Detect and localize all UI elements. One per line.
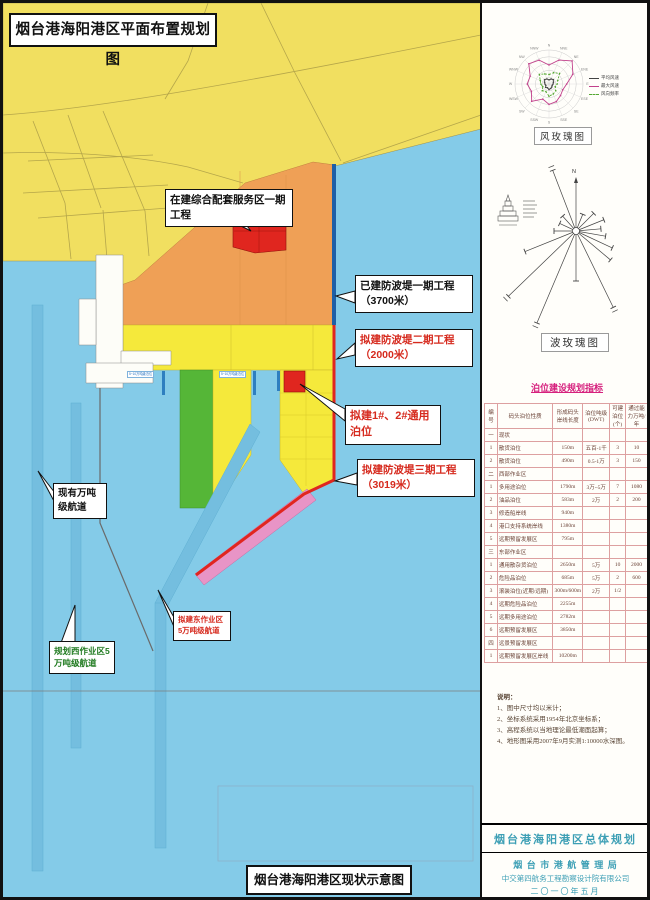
note-item: 3、高程系统以当地理论最低潮面起算； <box>497 725 647 736</box>
table-row: 一现状 <box>485 429 648 442</box>
wind-rose-point <box>545 91 547 93</box>
table-cell: 2万 <box>583 585 610 598</box>
table-cell <box>626 520 648 533</box>
table-row: 1通用散杂货泊位2650m5万102000 <box>485 559 648 572</box>
ray-end-bar2 <box>533 326 539 328</box>
table-cell: 散货泊位 <box>497 442 552 455</box>
callout-breakwater1: 已建防波堤一期工程（3700米） <box>355 275 473 313</box>
table-row: 4远期危险品泊位2255m <box>485 598 648 611</box>
table-cell <box>583 624 610 637</box>
bottom-caption-box: 烟台港海阳港区现状示意图 <box>246 865 412 895</box>
wind-rose-direction-label: SW <box>519 109 525 113</box>
table-cell: 散货泊位 <box>497 455 552 468</box>
wave-rose-center <box>573 228 580 235</box>
table-cell <box>583 598 610 611</box>
table-cell <box>626 429 648 442</box>
ray-end-bar <box>609 258 613 263</box>
table-cell: 5万 <box>583 559 610 572</box>
wind-rose-point <box>550 78 552 80</box>
wind-rose-legend: 平均风速最大风速风向频率 <box>589 74 619 98</box>
wind-rose-direction-label: SSW <box>530 118 539 122</box>
table-cell <box>626 624 648 637</box>
note-item: 4、地形图采用2007年9月实测1:10000水深图。 <box>497 736 647 747</box>
table-cell: 5 <box>485 533 498 546</box>
table-cell: 1080 <box>626 481 648 494</box>
wind-rose-point <box>542 86 544 88</box>
wind-rose-point <box>539 74 541 76</box>
table-cell: 5万 <box>583 572 610 585</box>
wind-rose-point <box>544 79 546 81</box>
table-cell: 多用途泊位 <box>497 481 552 494</box>
table-cell: 2 <box>485 494 498 507</box>
table-cell: 10200m <box>553 650 583 663</box>
table-cell: 远景预留发展区 <box>497 637 552 650</box>
wind-rose-point <box>544 83 546 85</box>
wind-rose-point <box>562 89 564 91</box>
callout-under-construction: 在建综合配套服务区一期工程 <box>165 189 293 227</box>
table-row: 3滚装泊位(近期/远期)300m/600m2万1/2 <box>485 585 648 598</box>
table-cell <box>626 585 648 598</box>
table-cell: 通用散杂货泊位 <box>497 559 552 572</box>
table-cell <box>583 637 610 650</box>
table-row: 2危险品泊位685m5万2600 <box>485 572 648 585</box>
table-row: 6远期预留发展区3850m <box>485 624 648 637</box>
ray-end-bar <box>611 245 614 250</box>
table-header-row: 编号码头泊位性质形成码头岸线长度泊位吨级(DWT)可建泊位(个)通过能力万吨/年 <box>485 404 648 429</box>
table-cell: 油品泊位 <box>497 494 552 507</box>
table-cell <box>553 546 583 559</box>
table-cell: 西部作业区 <box>497 468 552 481</box>
plan-title-block: 烟台港海阳港区总体规划 <box>481 823 650 853</box>
wind-rose-direction-label: NNE <box>560 47 568 51</box>
wind-rose-point <box>548 95 550 97</box>
wind-rose-direction-label: SSE <box>560 118 568 122</box>
date: 二〇一〇年五月 <box>481 886 650 897</box>
table-cell: 远期多用途泊位 <box>497 611 552 624</box>
wind-rose-chart: NNNENEENEEESESESSESSSWSWWSWWWNWNWNNW <box>509 44 589 125</box>
notes-label: 说明： <box>497 692 647 703</box>
table-row: 三东部作业区 <box>485 546 648 559</box>
wave-rose-ray <box>508 231 576 296</box>
wind-rose-point <box>548 74 550 76</box>
wind-rose-point <box>557 80 559 82</box>
ray-end-bar2 <box>503 297 507 301</box>
wind-rose-point <box>541 90 543 92</box>
table-cell: 滚装泊位(近期/远期) <box>497 585 552 598</box>
wind-rose-direction-label: NE <box>574 55 580 59</box>
table-cell <box>583 533 610 546</box>
table-cell: 200 <box>626 494 648 507</box>
wind-rose-direction-label: ESE <box>581 97 589 101</box>
table-cell <box>610 611 626 624</box>
table-cell <box>553 429 583 442</box>
table-cell: 远期预留发展区 <box>497 624 552 637</box>
table-cell <box>626 468 648 481</box>
table-cell: 3 <box>485 507 498 520</box>
table-cell: 490m <box>553 455 583 468</box>
table-cell <box>583 546 610 559</box>
table-cell <box>626 650 648 663</box>
table-cell <box>583 520 610 533</box>
planned-berths-1-2 <box>284 371 305 392</box>
wind-rose-point <box>545 87 547 89</box>
wind-rose-point <box>572 73 574 75</box>
berth-mark-left: 5~10万吨级泊位 <box>127 371 154 378</box>
table-cell: 940m <box>553 507 583 520</box>
callout-west-channel: 规划西作业区5万吨级航道 <box>49 641 115 674</box>
table-row: 2散货泊位490m0.5-1万3150 <box>485 455 648 468</box>
table-cell: 三 <box>485 546 498 559</box>
table-header-cell: 可建泊位(个) <box>610 404 626 429</box>
notes-block: 说明： 1、图中尺寸均以米计； 2、坐标系统采用1954年北京坐标系； 3、高程… <box>497 692 647 747</box>
wind-rose-point <box>547 87 549 89</box>
table-cell <box>626 611 648 624</box>
planning-map-sheet: NNNENEENEEESESESSESSSWSWWSWWWNWNWNNW 烟台港… <box>0 0 650 900</box>
table-cell <box>626 533 648 546</box>
table-cell <box>610 650 626 663</box>
table-cell <box>610 507 626 520</box>
berth-mark-right: 5~10万吨级泊位 <box>219 371 246 378</box>
wind-rose-direction-label: NNW <box>530 47 539 51</box>
table-cell <box>626 637 648 650</box>
wave-rose-ray <box>576 231 612 248</box>
wind-rose-point <box>546 78 548 80</box>
table-cell <box>626 598 648 611</box>
wave-rose-ray <box>553 170 576 231</box>
table-cell: 一 <box>485 429 498 442</box>
table-cell: 远期预留发展区岸线 <box>497 650 552 663</box>
wind-rose-title: 风玫瑰图 <box>534 127 592 145</box>
legend-label: 最大风速 <box>601 83 619 89</box>
table-cell <box>583 650 610 663</box>
callout-breakwater2: 拟建防波堤二期工程（2000米） <box>355 329 473 367</box>
table-cell: 东部作业区 <box>497 546 552 559</box>
wind-rose-point <box>548 104 550 106</box>
wind-rose-point <box>558 59 560 61</box>
table-cell <box>583 468 610 481</box>
wind-rose-point <box>544 81 546 83</box>
wind-rose-point <box>539 80 541 82</box>
ray-end-bar <box>611 306 616 309</box>
table-row: 3修造船岸线940m <box>485 507 648 520</box>
table-cell: 2255m <box>553 598 583 611</box>
table-cell: 2万 <box>583 494 610 507</box>
wave-rose-ray <box>537 231 576 323</box>
wind-rose-direction-label: SE <box>574 109 579 113</box>
ray-end-bar2 <box>612 310 617 313</box>
table-cell: 远期预留发展区 <box>497 533 552 546</box>
table-cell <box>610 468 626 481</box>
legend-swatch <box>589 78 599 79</box>
table-cell: 2782m <box>553 611 583 624</box>
table-cell: 583m <box>553 494 583 507</box>
wind-legend-row: 平均风速 <box>589 74 619 82</box>
table-cell: 四 <box>485 637 498 650</box>
berth-table-title: 泊位建设规划指标 <box>501 381 633 394</box>
table-cell: 4 <box>485 520 498 533</box>
table-row: 四远景预留发展区 <box>485 637 648 650</box>
map-title-box: 烟台港海阳港区平面布置规划图 <box>9 13 217 47</box>
wind-rose-point <box>531 101 533 103</box>
wind-legend-row: 风向频率 <box>589 90 619 98</box>
table-cell: 4 <box>485 598 498 611</box>
table-cell: 修造船岸线 <box>497 507 552 520</box>
org2: 中交第四航务工程勘察设计院有限公司 <box>481 873 650 884</box>
wind-rose-direction-label: WNW <box>509 67 519 71</box>
table-cell: 2000 <box>626 559 648 572</box>
table-cell: 3 <box>485 585 498 598</box>
table-cell: 2 <box>485 455 498 468</box>
wave-rose-ray <box>576 231 613 307</box>
wind-rose-point <box>529 75 531 77</box>
table-cell: 二 <box>485 468 498 481</box>
table-cell <box>553 637 583 650</box>
table-cell: 港口支持系统岸线 <box>497 520 552 533</box>
ray-end-bar2 <box>548 166 554 168</box>
table-header-cell: 编号 <box>485 404 498 429</box>
wind-rose-point <box>552 83 554 85</box>
callout-berths12: 拟建1#、2#通用泊位 <box>345 405 441 445</box>
table-header-cell: 泊位吨级(DWT) <box>583 404 610 429</box>
table-cell: 2 <box>610 494 626 507</box>
table-cell <box>553 468 583 481</box>
table-cell: 1790m <box>553 481 583 494</box>
table-cell: 600 <box>626 572 648 585</box>
wind-rose-point <box>551 86 553 88</box>
table-cell: 1 <box>485 442 498 455</box>
table-row: 1散货泊位150m五百-1千310 <box>485 442 648 455</box>
table-cell: 685m <box>553 572 583 585</box>
wind-rose-point <box>555 101 557 103</box>
wave-rose-title: 波玫瑰图 <box>541 333 609 352</box>
table-cell: 6 <box>485 624 498 637</box>
table-cell: 2 <box>485 572 498 585</box>
legend-swatch <box>589 94 599 95</box>
table-cell <box>583 507 610 520</box>
wind-rose-point <box>544 73 546 75</box>
wind-rose-point <box>540 83 542 85</box>
wind-rose-point <box>551 85 553 87</box>
callout-breakwater3: 拟建防波堤三期工程（3019米） <box>357 459 475 497</box>
note-item: 1、图中尺寸均以米计； <box>497 703 647 714</box>
table-row: 1远期预留发展区岸线10200m <box>485 650 648 663</box>
wind-legend-row: 最大风速 <box>589 82 619 90</box>
table-cell <box>610 429 626 442</box>
wind-rose-point <box>528 63 530 65</box>
table-cell: 300m/600m <box>553 585 583 598</box>
north-arrow <box>574 177 578 183</box>
table-cell: 2 <box>610 572 626 585</box>
legend-swatch <box>589 86 599 87</box>
table-row: 5远期多用途泊位2782m <box>485 611 648 624</box>
wind-rose-direction-label: NW <box>519 55 526 59</box>
ray-end-bar <box>601 226 602 232</box>
table-cell <box>610 637 626 650</box>
table-cell <box>610 624 626 637</box>
wind-rose-point <box>559 73 561 75</box>
table-header-cell: 通过能力万吨/年 <box>626 404 648 429</box>
table-cell <box>626 546 648 559</box>
table-cell: 1 <box>485 481 498 494</box>
table-cell <box>626 507 648 520</box>
table-cell: 10 <box>610 559 626 572</box>
wind-rose-point <box>556 83 558 85</box>
wave-rose-chart <box>503 166 617 328</box>
wind-rose-point <box>542 98 544 100</box>
table-cell: 150m <box>553 442 583 455</box>
wind-rose-point <box>538 59 540 61</box>
table-cell: 3850m <box>553 624 583 637</box>
ray-end-bar <box>605 233 606 239</box>
table-cell: 远期危险品泊位 <box>497 598 552 611</box>
wind-rose-point <box>566 83 568 85</box>
table-cell: 795m <box>553 533 583 546</box>
wave-rose-legend-glyph <box>498 195 537 225</box>
wind-rose-point <box>571 60 573 62</box>
wind-rose-point <box>560 95 562 97</box>
table-cell: 10 <box>626 442 648 455</box>
table-row: 2油品泊位583m2万2200 <box>485 494 648 507</box>
table-row: 二西部作业区 <box>485 468 648 481</box>
table-cell: 3万~5万 <box>583 481 610 494</box>
container-zone <box>180 370 213 508</box>
table-cell: 危险品泊位 <box>497 572 552 585</box>
table-cell: 2650m <box>553 559 583 572</box>
wind-rose-point <box>548 79 550 81</box>
wind-rose-point <box>553 72 555 74</box>
wind-rose-point <box>550 88 552 90</box>
table-cell: 1 <box>485 650 498 663</box>
wind-rose-point <box>548 64 550 66</box>
wind-rose-point <box>548 89 550 91</box>
wind-rose-point <box>531 90 533 92</box>
wind-rose-point <box>553 81 555 83</box>
table-cell: 现状 <box>497 429 552 442</box>
table-cell: 1 <box>485 559 498 572</box>
org-title-block: 烟 台 市 港 航 管 理 局 中交第四航务工程勘察设计院有限公司 二〇一〇年五… <box>481 854 650 900</box>
table-cell: 1380m <box>553 520 583 533</box>
wind-rose-point <box>545 85 547 87</box>
wind-rose-direction-label: WSW <box>509 97 519 101</box>
table-header-cell: 形成码头岸线长度 <box>553 404 583 429</box>
table-header-cell: 码头泊位性质 <box>497 404 552 429</box>
legend-label: 风向频率 <box>601 91 619 97</box>
table-cell: 3 <box>610 455 626 468</box>
wind-rose-direction-label: S <box>548 121 551 125</box>
wind-rose-point <box>552 93 554 95</box>
wind-rose-point <box>555 90 557 92</box>
wind-rose-point <box>553 79 555 81</box>
wind-rose-point <box>554 86 556 88</box>
table-cell: 5 <box>485 611 498 624</box>
table-cell <box>610 546 626 559</box>
table-cell: 3 <box>610 442 626 455</box>
table-cell: 7 <box>610 481 626 494</box>
table-cell: 150 <box>626 455 648 468</box>
table-cell <box>583 429 610 442</box>
callout-existing-channel: 现有万吨级航道 <box>53 483 107 519</box>
table-cell <box>610 533 626 546</box>
table-cell: 1/2 <box>610 585 626 598</box>
table-row: 5远期预留发展区795m <box>485 533 648 546</box>
wind-rose-point <box>526 83 528 85</box>
table-cell <box>610 520 626 533</box>
table-cell: 五百-1千 <box>583 442 610 455</box>
wind-rose-direction-label: W <box>509 82 513 86</box>
table-row: 1多用途泊位1790m3万~5万71080 <box>485 481 648 494</box>
ray-end-bar <box>558 221 561 226</box>
berth-plan-table: 编号码头泊位性质形成码头岸线长度泊位吨级(DWT)可建泊位(个)通过能力万吨/年… <box>484 403 648 663</box>
org1: 烟 台 市 港 航 管 理 局 <box>481 858 650 871</box>
table-cell <box>610 598 626 611</box>
note-item: 2、坐标系统采用1954年北京坐标系； <box>497 714 647 725</box>
legend-label: 平均风速 <box>601 75 619 81</box>
callout-east-channel: 拟建东作业区5万吨级航道 <box>173 611 231 641</box>
table-cell <box>583 611 610 624</box>
wind-rose-direction-label: ENE <box>581 67 589 71</box>
table-cell: 0.5-1万 <box>583 455 610 468</box>
table-row: 4港口支持系统岸线1380m <box>485 520 648 533</box>
wind-rose-direction-label: N <box>548 44 551 48</box>
